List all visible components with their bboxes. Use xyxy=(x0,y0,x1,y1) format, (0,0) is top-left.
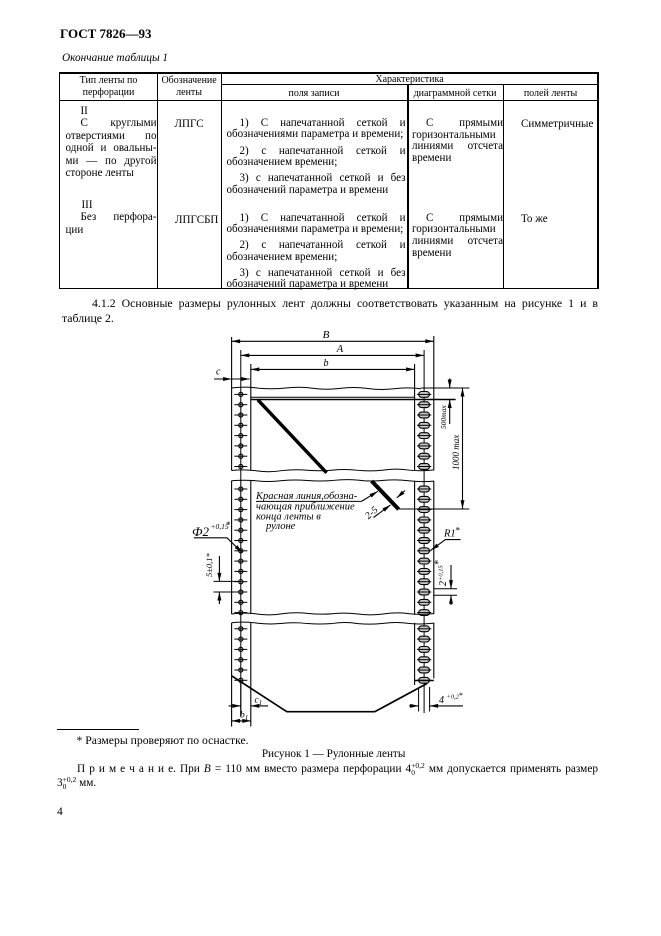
svg-text:B: B xyxy=(323,329,330,341)
svg-text:R1*: R1* xyxy=(443,526,461,540)
svg-text:Ф2: Ф2 xyxy=(192,524,209,539)
svg-text:*: * xyxy=(459,691,463,700)
svg-text:2-5: 2-5 xyxy=(363,505,380,522)
svg-text:b: b xyxy=(324,358,329,369)
svg-text:рулоне: рулоне xyxy=(265,521,296,532)
svg-text:c: c xyxy=(216,367,221,378)
svg-text:A: A xyxy=(336,344,344,355)
svg-text:500max: 500max xyxy=(439,405,448,429)
svg-text:1000 max: 1000 max xyxy=(451,435,461,470)
svg-text:5±0,1*: 5±0,1* xyxy=(204,552,214,577)
svg-text:Красная линия,обозна-: Красная линия,обозна- xyxy=(255,491,358,502)
svg-text:b1: b1 xyxy=(240,711,248,723)
svg-text:+0,2: +0,2 xyxy=(447,694,460,701)
svg-text:4: 4 xyxy=(439,695,444,706)
svg-text:2+0,15*: 2+0,15* xyxy=(434,560,450,586)
svg-text:*: * xyxy=(226,520,231,530)
svg-text:c1: c1 xyxy=(255,696,263,708)
